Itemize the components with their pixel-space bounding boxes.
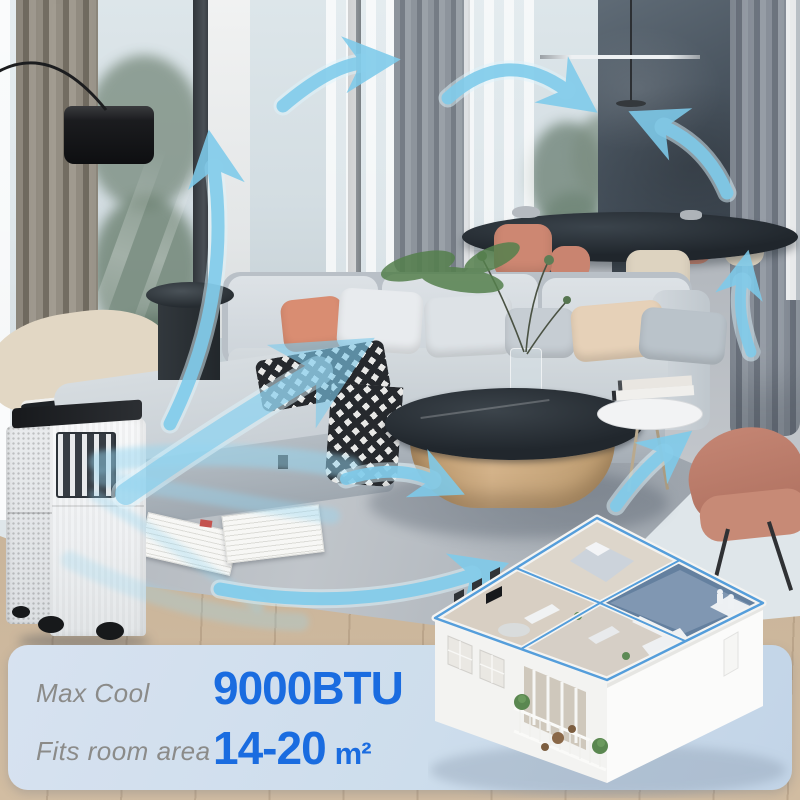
spec-unit: m² (335, 736, 371, 771)
floor-plan-illustration (428, 498, 796, 798)
plant-dot (622, 652, 630, 660)
balcony-chair (568, 725, 576, 733)
spec-value: 9000BTU (213, 661, 412, 715)
balcony-table (552, 732, 564, 744)
arc-lamp-arm (0, 63, 106, 110)
front-plant (378, 236, 524, 298)
mini-rug (498, 623, 530, 637)
spec-label: Max Cool (36, 678, 150, 709)
airflow-arrow (126, 371, 318, 494)
spec-label: Fits room area (36, 736, 211, 767)
balcony-chair (541, 743, 549, 751)
side-door (724, 632, 738, 676)
spec-value: 14-20m² (213, 721, 371, 775)
product-scene: Max Cool 9000BTU Fits room area 14-20m² (0, 0, 800, 800)
